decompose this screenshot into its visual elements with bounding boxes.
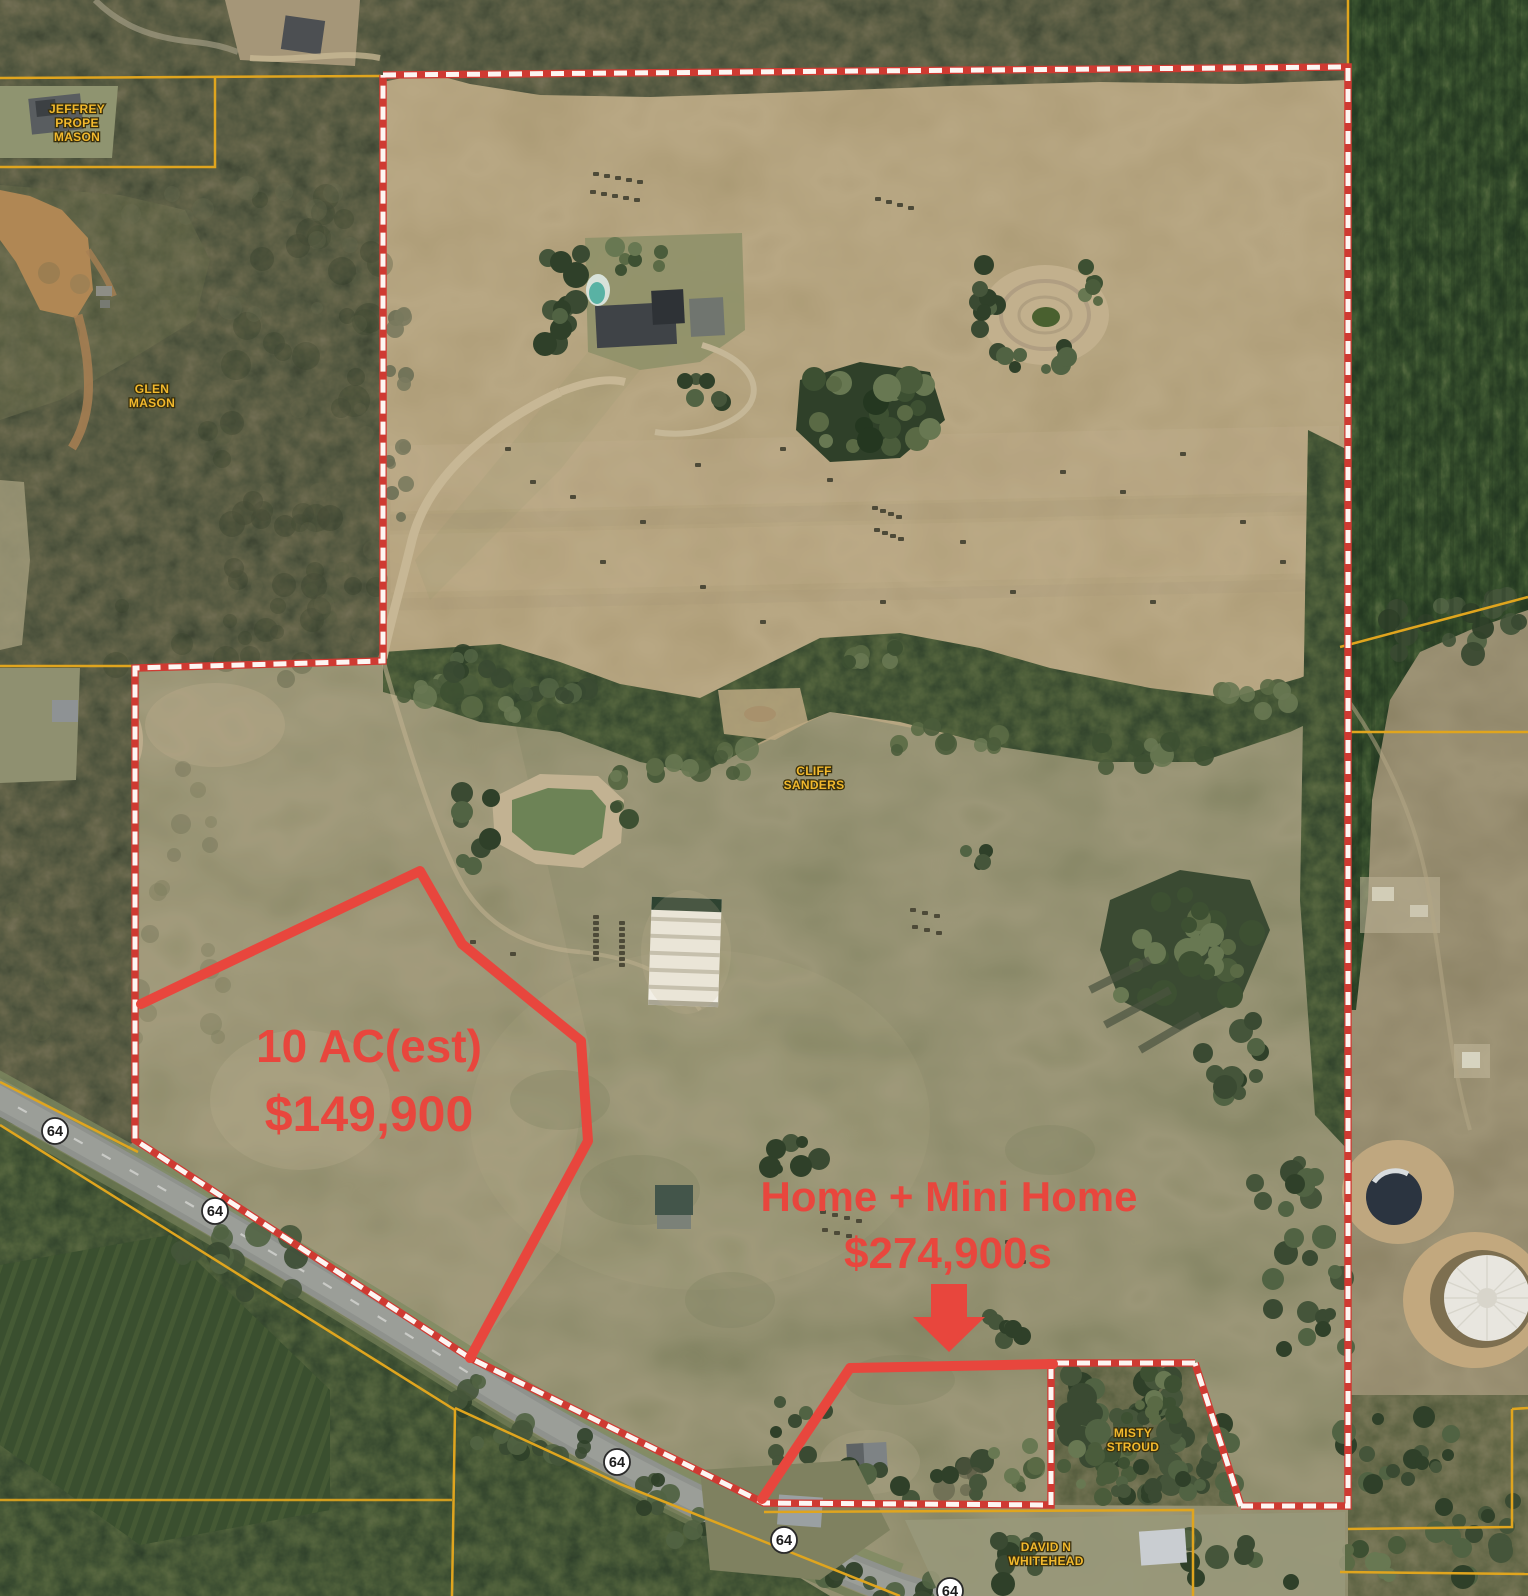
- svg-text:WHITEHEAD: WHITEHEAD: [1008, 1554, 1083, 1568]
- svg-text:Home + Mini Home: Home + Mini Home: [761, 1173, 1138, 1220]
- svg-text:64: 64: [942, 1584, 958, 1596]
- svg-text:JEFFREY: JEFFREY: [49, 102, 105, 116]
- svg-text:MISTY: MISTY: [1114, 1426, 1152, 1440]
- svg-text:GLEN: GLEN: [135, 382, 170, 396]
- svg-text:SANDERS: SANDERS: [784, 778, 845, 792]
- svg-text:$149,900: $149,900: [265, 1086, 474, 1142]
- svg-text:MASON: MASON: [129, 396, 175, 410]
- svg-text:64: 64: [47, 1124, 63, 1140]
- svg-text:64: 64: [776, 1533, 792, 1549]
- svg-text:STROUD: STROUD: [1107, 1440, 1160, 1454]
- svg-text:10 AC(est): 10 AC(est): [256, 1020, 482, 1072]
- svg-text:PROPE: PROPE: [55, 116, 99, 130]
- svg-text:CLIFF: CLIFF: [796, 764, 832, 778]
- svg-text:MASON: MASON: [54, 130, 100, 144]
- svg-text:64: 64: [609, 1455, 625, 1471]
- svg-text:64: 64: [207, 1204, 223, 1220]
- svg-text:$274,900s: $274,900s: [844, 1229, 1052, 1278]
- svg-text:DAVID N: DAVID N: [1021, 1540, 1072, 1554]
